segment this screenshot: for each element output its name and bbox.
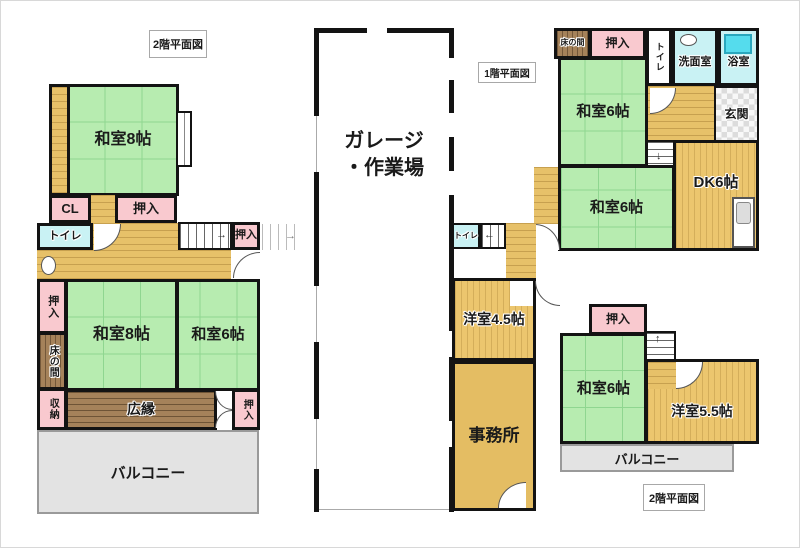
balcony-left: バルコニー (37, 430, 259, 514)
room-label: 床の間 (47, 345, 58, 378)
garage-label-line1: ガレージ (319, 128, 449, 155)
closet-oshiire-1f: 押入 (589, 28, 646, 59)
room-label: トイレ (49, 231, 82, 243)
closet-shuno: 収納 (37, 388, 67, 430)
room-label: 押入 (241, 399, 252, 421)
closet-cl: CL (49, 195, 91, 223)
toilet-2f-left: トイレ (37, 223, 93, 250)
room-washitsu6-left: 和室6帖 (176, 279, 260, 391)
room-label: 洗面室 (679, 57, 712, 69)
room-label: 押入 (606, 313, 630, 326)
hall-strip-top-left (49, 84, 69, 196)
garage-window (449, 171, 454, 195)
garage-window (449, 113, 454, 137)
closet-oshiire-bottom-right: 押入 (232, 389, 260, 430)
garage-window (449, 58, 454, 80)
room-washitsu6-2f: 和室6帖 (560, 333, 647, 444)
stairs-arrow-up-icon: ↑ (655, 334, 661, 345)
room-label: 収納 (47, 398, 58, 420)
room-label: 押入 (133, 202, 159, 216)
stairs-arrow-down-icon: ↓ (656, 151, 662, 162)
room-label: 床の間 (561, 39, 585, 47)
garage-label: ガレージ ・作業場 (319, 128, 449, 182)
first-floor-title: 1階平面図 (478, 62, 536, 83)
hall-upper (91, 195, 117, 225)
window-bay (176, 111, 192, 167)
room-label: 和室6帖 (577, 381, 630, 397)
yoshitsu45-notch (510, 281, 533, 306)
stairs-arrow-left-icon: ← (484, 230, 495, 241)
room-label: 和室6帖 (191, 327, 244, 343)
room-label: 和室6帖 (576, 104, 629, 120)
tokonoma-left: 床の間 (37, 332, 67, 390)
toilet-bowl-icon (41, 256, 56, 275)
closet-oshiire-2f: 押入 (589, 304, 647, 335)
hall-strip-1f (534, 167, 558, 224)
room-washitsu8-top: 和室8帖 (67, 84, 179, 196)
room-washitsu6-1f-a: 和室6帖 (558, 57, 648, 167)
room-label: 和室6帖 (590, 200, 643, 216)
balcony-2f-right: バルコニー (560, 444, 734, 472)
room-label: バルコニー (111, 462, 186, 483)
bathtub-icon (724, 34, 752, 54)
room-label: 浴室 (728, 57, 750, 69)
room-label: 押入 (605, 37, 629, 50)
toilet-1f: トイレ (646, 28, 672, 86)
closet-oshiire-left: 押入 (37, 279, 67, 334)
room-label: DK6帖 (693, 175, 738, 191)
room-label: 洋室5.5帖 (671, 404, 732, 419)
room-label: トイレ (454, 232, 478, 240)
stairs-2f-right (645, 331, 676, 361)
landing-2f-right (648, 362, 676, 389)
door-arc (215, 391, 232, 410)
stairs-arrow-right-icon: → (216, 230, 227, 241)
corridor-1f (506, 223, 536, 279)
hallway-2f-left-b (37, 250, 231, 279)
stairs-arrow-right-icon: → (285, 231, 296, 242)
room-label: トイレ (654, 42, 663, 72)
toilet-1f-b: トイレ (452, 223, 480, 249)
door-arc (233, 252, 260, 278)
room-label: CL (61, 202, 78, 216)
room-label: 洋室4.5帖 (463, 312, 524, 327)
room-hiroen: 広縁 (65, 389, 217, 430)
right-plan-title: 2階平面図 (643, 484, 705, 511)
garage-window (367, 28, 387, 33)
left-plan-title: 2階平面図 (149, 30, 207, 58)
room-label: 押入 (235, 230, 257, 242)
room-garage: ガレージ ・作業場 (314, 28, 454, 512)
floor-plan-canvas: 2階平面図 和室8帖 CL 押入 トイレ → 押入 → 押入 床の間 収納 和室… (0, 0, 800, 548)
room-washitsu6-1f-b: 和室6帖 (558, 165, 675, 251)
room-washitsu8: 和室8帖 (65, 279, 178, 391)
sink-icon (680, 34, 697, 46)
room-label: バルコニー (615, 449, 680, 468)
room-genkan: 玄関 (714, 86, 759, 142)
room-label: 広縁 (127, 402, 155, 417)
room-label: 事務所 (469, 427, 520, 445)
room-label: 玄関 (724, 108, 748, 121)
tokonoma-1f: 床の間 (554, 28, 591, 59)
door-arc (215, 410, 232, 428)
door-arc (535, 224, 560, 250)
room-label: 和室8帖 (93, 327, 150, 344)
door-arc (535, 281, 560, 306)
closet-oshiire-stair: 押入 (232, 222, 260, 250)
closet-oshiire-top: 押入 (115, 195, 177, 223)
room-label: 押入 (46, 295, 58, 319)
room-label: 和室8帖 (95, 132, 152, 149)
kitchen-unit-icon (732, 197, 755, 248)
garage-label-line2: ・作業場 (319, 155, 449, 182)
